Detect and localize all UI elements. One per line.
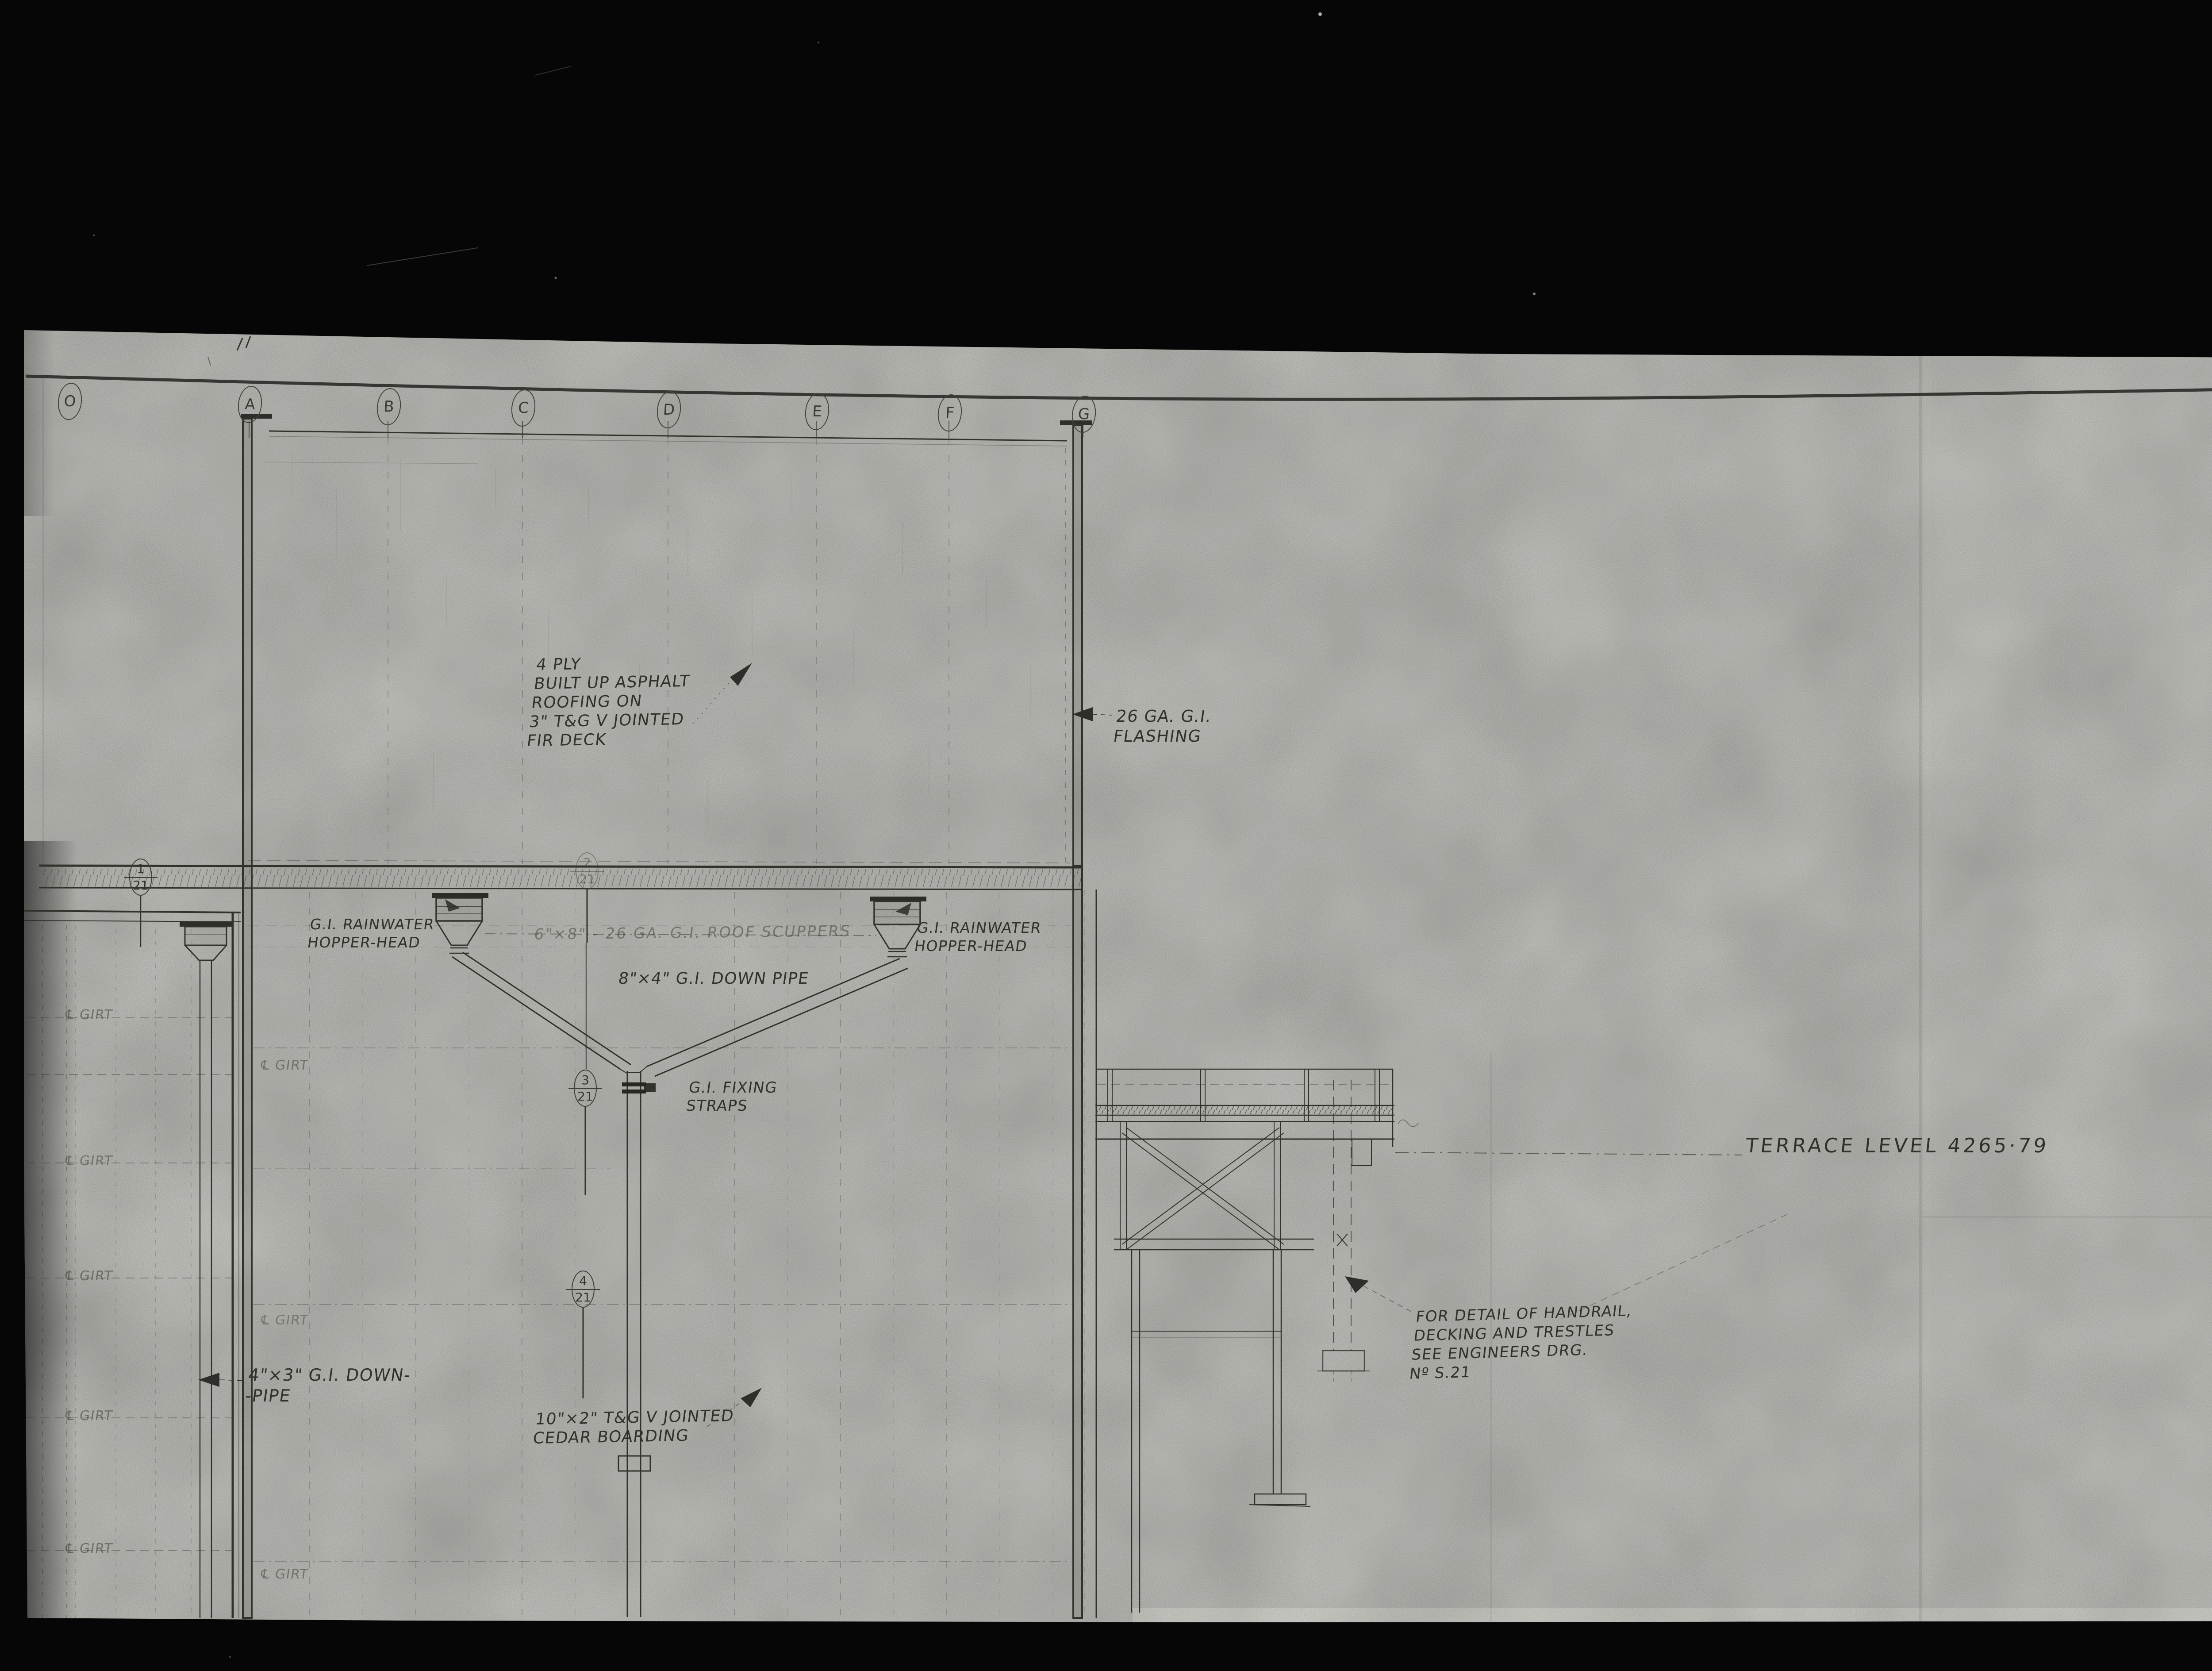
girt-label: ℄ GIRT [64, 1408, 114, 1424]
girt-label: ℄ GIRT [64, 1153, 114, 1169]
note-handrail-detail: FOR DETAIL OF HANDRAIL, DECKING AND TRES… [1408, 1301, 1633, 1384]
girt-label: ℄ GIRT [64, 1541, 114, 1557]
marker-number: 4 [579, 1274, 587, 1288]
marker-sheet: 21 [575, 1290, 591, 1305]
note-down-pipe-8x4: 8"×4" G.I. DOWN PIPE [617, 969, 810, 988]
marker-divider [568, 1088, 602, 1089]
note-hopper-right: G.I. RAINWATER HOPPER-HEAD [913, 919, 1043, 955]
marker-number: 1 [137, 862, 145, 876]
paper-sheet [24, 330, 2212, 1624]
note-fixing-straps: G.I. FIXING STRAPS [685, 1079, 779, 1115]
note-hopper-left: G.I. RAINWATER HOPPER-HEAD [306, 915, 436, 951]
detail-marker-2-21: 2 21 [576, 852, 599, 889]
detail-marker-1-21: 1 21 [129, 859, 152, 896]
girt-label: ℄ GIRT [260, 1058, 309, 1074]
marker-divider [124, 877, 157, 878]
girt-label: ℄ GIRT [64, 1268, 114, 1284]
marker-sheet: 21 [577, 1089, 593, 1104]
marker-number: 3 [581, 1073, 589, 1087]
note-flashing: 26 GA. G.I. FLASHING [1112, 706, 1213, 746]
girt-label: ℄ GIRT [260, 1567, 309, 1582]
detail-marker-3-21: 3 21 [574, 1070, 597, 1107]
marker-divider [566, 1289, 600, 1290]
marker-number: 2 [583, 855, 591, 870]
note-terrace-level: TERRACE LEVEL 4265·79 [1744, 1134, 2050, 1158]
girt-label: ℄ GIRT [260, 1313, 309, 1328]
note-roofing: 4 PLY BUILT UP ASPHALT ROOFING ON 3" T&G… [526, 653, 693, 751]
scanned-drawing-sheet: O A B C D E F G 1 21 2 21 3 21 4 21 4 PL… [0, 0, 2212, 1671]
detail-marker-4-21: 4 21 [572, 1271, 595, 1308]
marker-sheet: 21 [133, 878, 149, 893]
marker-divider [570, 871, 604, 872]
note-roof-scuppers: 6"×8" - 26 GA. G.I. ROOF SCUPPERS [533, 922, 852, 943]
note-cedar-boarding: 10"×2" T&G V JOINTED CEDAR BOARDING [532, 1406, 735, 1448]
marker-sheet: 21 [579, 872, 595, 886]
girt-label: ℄ GIRT [64, 1007, 114, 1023]
drawing-linework [0, 0, 2212, 1671]
note-down-pipe-4x3: 4"×3" G.I. DOWN- -PIPE [244, 1365, 412, 1406]
